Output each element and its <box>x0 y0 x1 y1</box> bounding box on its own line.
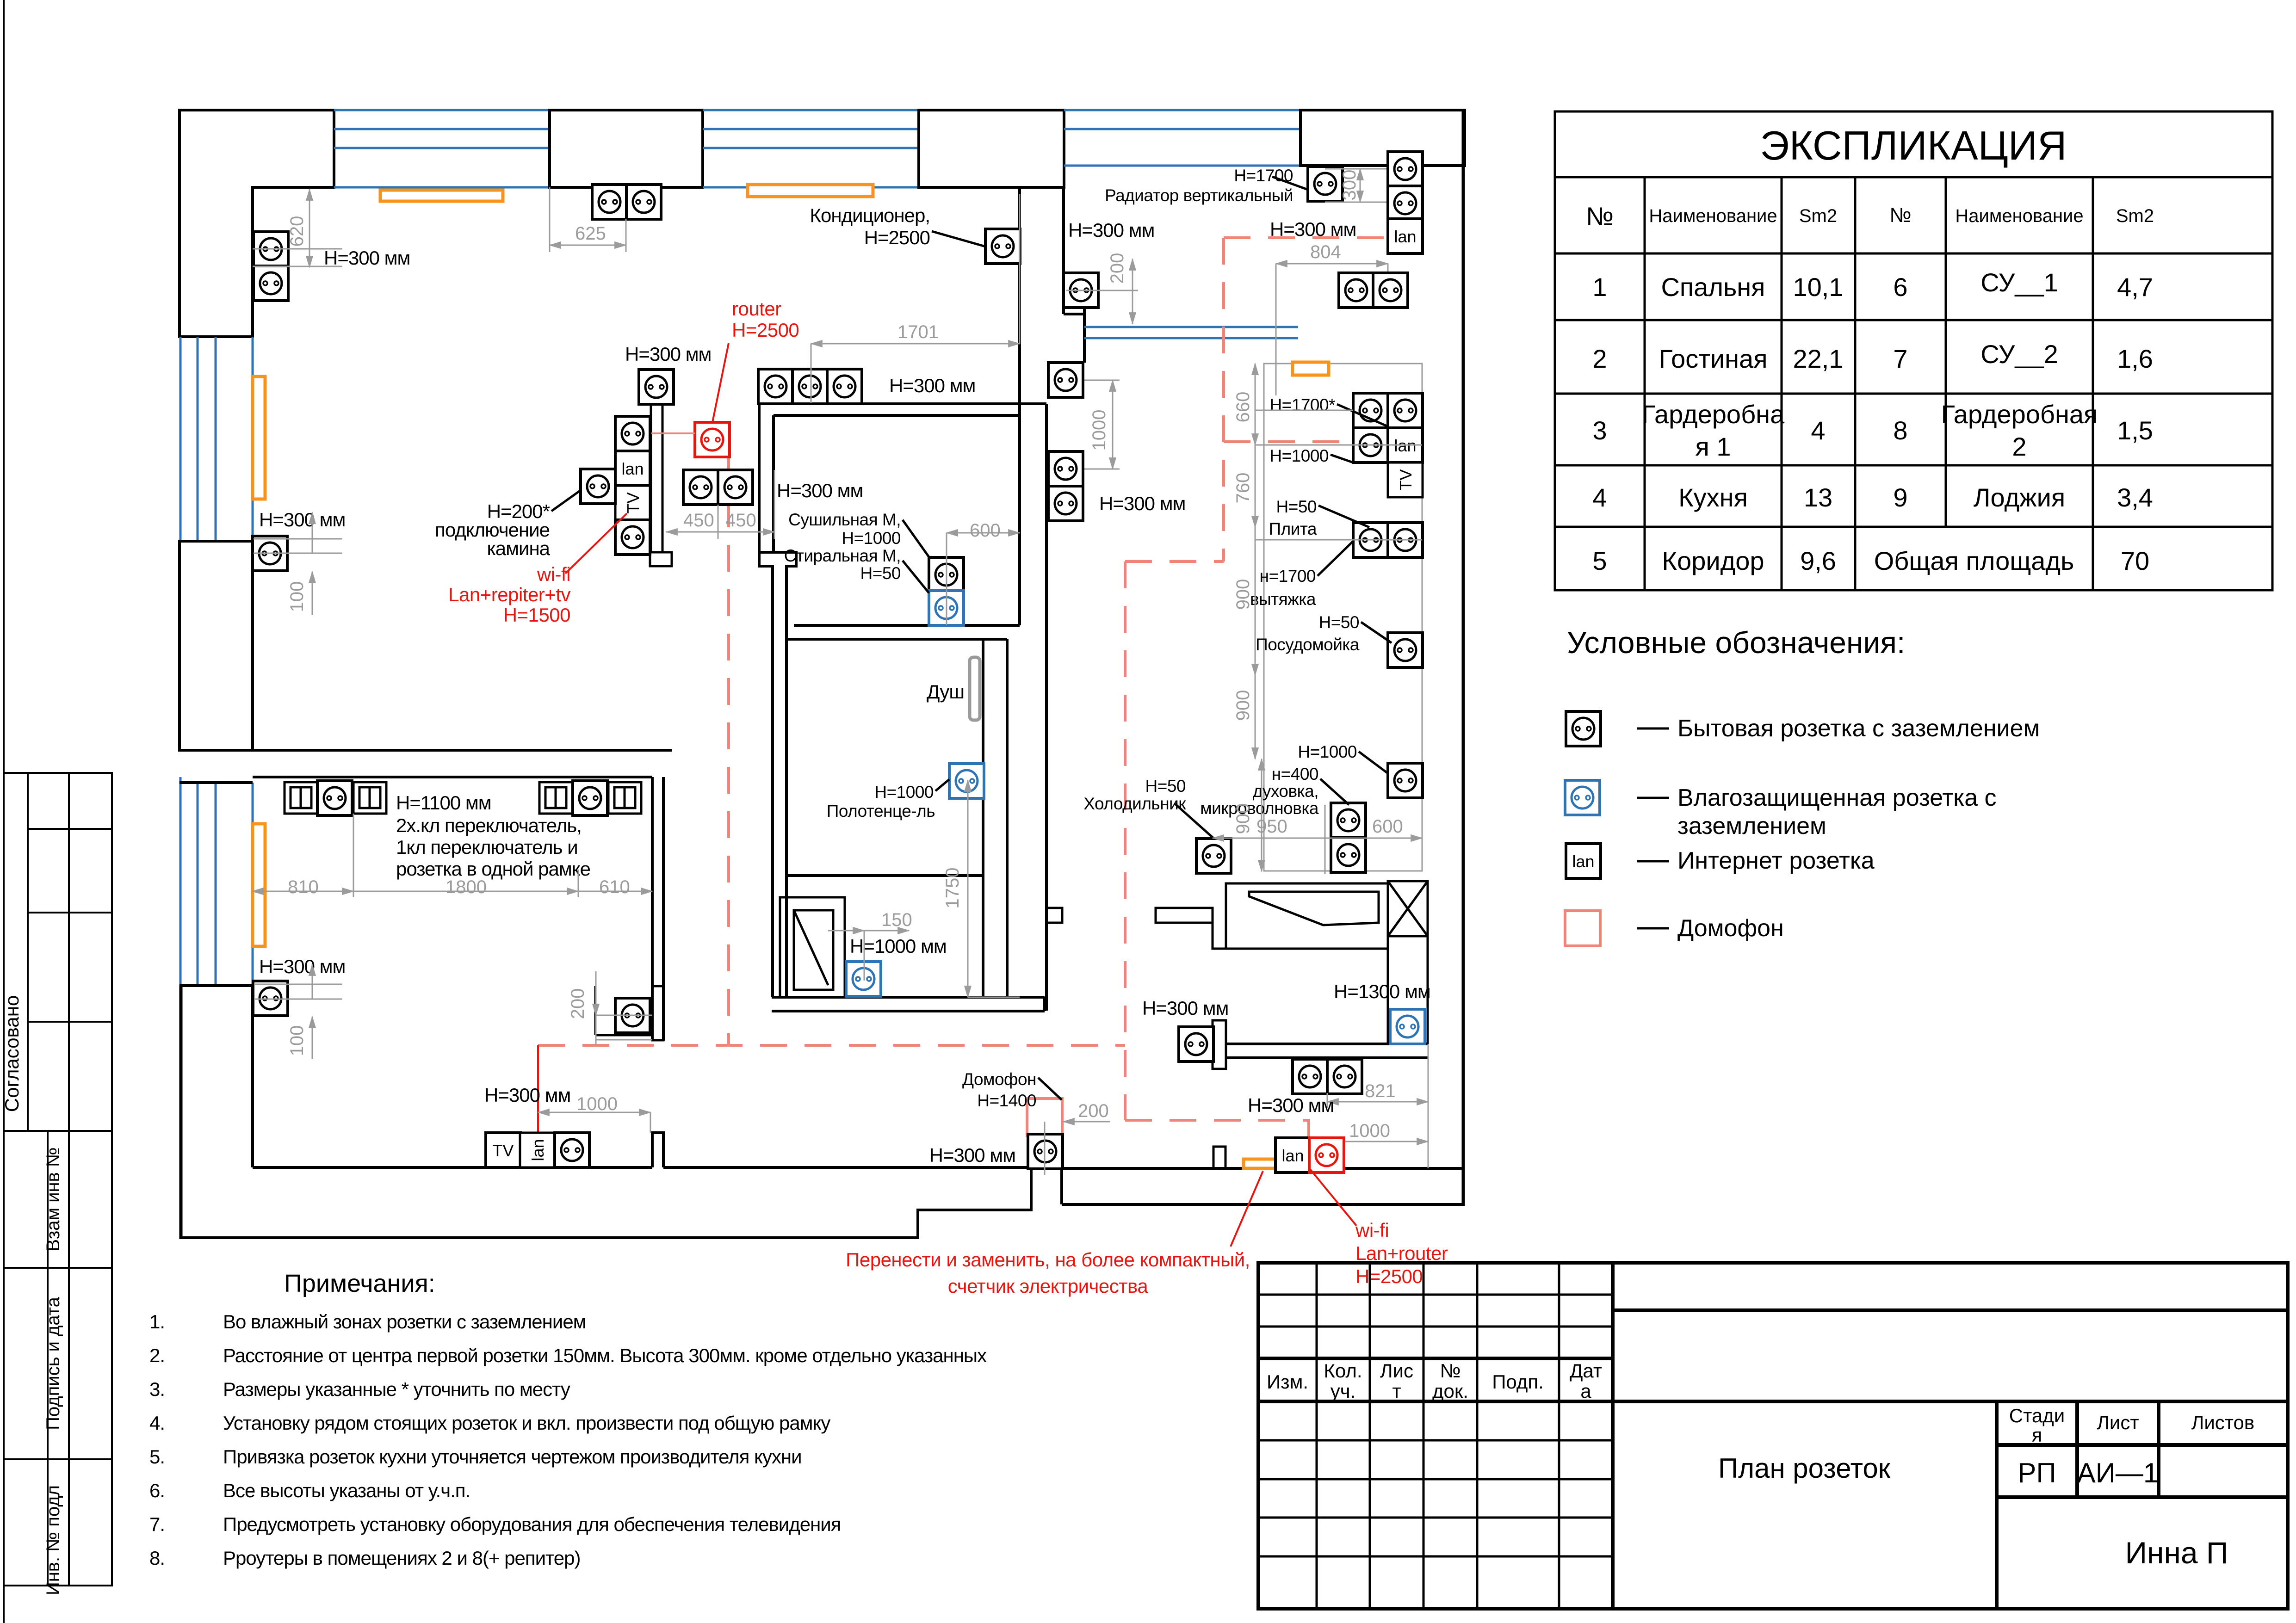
svg-text:H=300 мм: H=300 мм <box>259 509 345 531</box>
svg-text:5: 5 <box>1592 546 1607 575</box>
svg-text:Рроутеры в помещениях 2 и 8(+: Рроутеры в помещениях 2 и 8(+ репитер) <box>223 1547 581 1569</box>
svg-text:H=1000: H=1000 <box>842 529 901 548</box>
svg-text:Плита: Плита <box>1269 519 1317 538</box>
svg-text:660: 660 <box>1233 392 1253 423</box>
svg-text:2: 2 <box>1592 344 1607 373</box>
svg-text:Спальня: Спальня <box>1661 272 1765 302</box>
svg-text:610: 610 <box>599 877 630 897</box>
svg-text:8.: 8. <box>149 1547 165 1569</box>
svg-text:Лоджия: Лоджия <box>1974 483 2065 512</box>
svg-text:H=1000: H=1000 <box>1298 742 1357 761</box>
svg-text:1000: 1000 <box>1089 410 1109 451</box>
svg-text:H=300 мм: H=300 мм <box>1142 997 1228 1019</box>
svg-text:810: 810 <box>288 877 319 897</box>
svg-text:H=300 мм: H=300 мм <box>1270 218 1356 240</box>
svg-text:Гостиная: Гостиная <box>1659 344 1767 373</box>
svg-text:760: 760 <box>1233 473 1253 504</box>
svg-text:H=50: H=50 <box>1319 613 1359 632</box>
svg-text:H=300 мм: H=300 мм <box>777 480 863 501</box>
svg-text:600: 600 <box>970 520 1001 541</box>
svg-text:План розеток: План розеток <box>1718 1453 1891 1484</box>
svg-text:вытяжка: вытяжка <box>1250 590 1316 609</box>
svg-text:я 1: я 1 <box>1695 432 1731 461</box>
svg-text:4: 4 <box>1592 483 1607 512</box>
svg-text:4: 4 <box>1811 416 1825 445</box>
svg-text:lan: lan <box>528 1139 547 1161</box>
svg-text:розетка в одной рамке: розетка в одной рамке <box>396 858 590 880</box>
svg-text:900: 900 <box>1233 803 1253 834</box>
svg-text:Домофон: Домофон <box>962 1070 1036 1089</box>
svg-text:625: 625 <box>575 223 606 244</box>
svg-text:СУ__2: СУ__2 <box>1980 339 2058 369</box>
svg-text:6: 6 <box>1893 272 1907 302</box>
svg-text:Все высоты указаны от у.ч.п.: Все высоты указаны от у.ч.п. <box>223 1480 470 1501</box>
svg-text:200: 200 <box>1078 1101 1109 1121</box>
svg-text:H=300 мм: H=300 мм <box>929 1144 1015 1166</box>
svg-text:Общая площадь: Общая площадь <box>1874 546 2074 575</box>
svg-text:H=2500: H=2500 <box>732 319 799 341</box>
svg-text:H=50: H=50 <box>860 564 901 583</box>
svg-text:3,4: 3,4 <box>2117 483 2153 512</box>
svg-text:1750: 1750 <box>942 868 963 909</box>
svg-text:100: 100 <box>287 581 307 612</box>
svg-text:H=1000: H=1000 <box>874 783 934 802</box>
svg-text:1,5: 1,5 <box>2117 416 2153 445</box>
svg-text:8: 8 <box>1893 416 1907 445</box>
svg-text:Влагозащищенная розетка с: Влагозащищенная розетка с <box>1677 784 1997 811</box>
svg-text:9,6: 9,6 <box>1800 546 1836 575</box>
svg-text:H=1100 мм: H=1100 мм <box>396 792 491 814</box>
svg-text:H=300 мм: H=300 мм <box>259 956 345 977</box>
svg-text:100: 100 <box>287 1025 307 1056</box>
svg-text:№: № <box>1440 1360 1461 1382</box>
svg-text:Подпись и дата: Подпись и дата <box>43 1296 63 1430</box>
svg-text:5.: 5. <box>149 1446 165 1468</box>
svg-text:Кухня: Кухня <box>1678 483 1748 512</box>
svg-text:3.: 3. <box>149 1378 165 1400</box>
svg-text:Гардеробная: Гардеробная <box>1941 400 2098 429</box>
svg-text:Интернет розетка: Интернет розетка <box>1677 847 1875 874</box>
svg-text:Расстояние от центра первой ро: Расстояние от центра первой розетки 150м… <box>223 1345 987 1366</box>
svg-text:Размеры указанные * уточнить п: Размеры указанные * уточнить по месту <box>223 1378 570 1400</box>
svg-text:450: 450 <box>725 510 756 531</box>
svg-text:router: router <box>732 298 781 320</box>
svg-text:H=1500: H=1500 <box>503 604 570 626</box>
svg-text:Радиатор вертикальный: Радиатор вертикальный <box>1105 186 1293 205</box>
svg-text:н=1700: н=1700 <box>1260 567 1316 586</box>
svg-text:wi-fi: wi-fi <box>537 563 570 585</box>
svg-text:Коридор: Коридор <box>1662 546 1764 575</box>
svg-text:Примечания:: Примечания: <box>284 1270 435 1297</box>
svg-text:Подп.: Подп. <box>1492 1371 1544 1393</box>
svg-text:Sm2: Sm2 <box>2116 206 2154 226</box>
svg-text:н=400: н=400 <box>1272 765 1318 784</box>
svg-text:2х.кл переключатель,: 2х.кл переключатель, <box>396 815 582 836</box>
svg-text:2: 2 <box>2012 432 2026 461</box>
svg-text:804: 804 <box>1310 242 1341 262</box>
svg-text:Домофон: Домофон <box>1677 915 1784 942</box>
svg-text:Во влажный зонах розетки с заз: Во влажный зонах розетки с заземлением <box>223 1311 586 1333</box>
svg-text:Листов: Листов <box>2191 1412 2254 1433</box>
svg-text:22,1: 22,1 <box>1793 344 1844 373</box>
svg-text:9: 9 <box>1893 483 1907 512</box>
svg-text:H=2500: H=2500 <box>1355 1265 1423 1287</box>
svg-text:Лис: Лис <box>1380 1360 1413 1382</box>
svg-text:т: т <box>1392 1380 1401 1402</box>
svg-text:1кл переключатель и: 1кл переключатель и <box>396 836 578 858</box>
svg-text:Условные обозначения:: Условные обозначения: <box>1567 625 1905 660</box>
svg-text:Душ: Душ <box>927 681 964 703</box>
svg-text:4,7: 4,7 <box>2117 272 2153 302</box>
svg-text:H=1300 мм: H=1300 мм <box>1334 981 1430 1002</box>
svg-text:Лист: Лист <box>2097 1412 2139 1433</box>
svg-text:Дат: Дат <box>1570 1360 1602 1382</box>
svg-text:1000: 1000 <box>576 1094 618 1114</box>
svg-text:Инв. № подл: Инв. № подл <box>43 1485 63 1595</box>
svg-text:7: 7 <box>1893 344 1907 373</box>
svg-text:Согласовано: Согласовано <box>1 995 23 1112</box>
svg-text:Полотенце-ль: Полотенце-ль <box>827 802 935 821</box>
svg-text:H=1700*: H=1700* <box>1269 395 1335 414</box>
svg-text:Sm2: Sm2 <box>1799 206 1837 226</box>
svg-text:H=2500: H=2500 <box>864 227 930 248</box>
svg-text:wi-fi: wi-fi <box>1355 1219 1389 1241</box>
svg-text:150: 150 <box>881 910 912 930</box>
svg-text:13: 13 <box>1804 483 1832 512</box>
svg-text:6.: 6. <box>149 1480 165 1501</box>
svg-text:200: 200 <box>1107 253 1127 284</box>
svg-text:микроволновка: микроволновка <box>1200 799 1319 818</box>
svg-text:ЭКСПЛИКАЦИЯ: ЭКСПЛИКАЦИЯ <box>1760 123 2067 168</box>
svg-text:Предусмотреть установку оборуд: Предусмотреть установку оборудования для… <box>223 1513 841 1535</box>
svg-text:я: я <box>2032 1424 2042 1446</box>
svg-text:Посудомойка: Посудомойка <box>1256 635 1360 654</box>
svg-text:TV: TV <box>1396 469 1415 490</box>
svg-text:Сушильная М,: Сушильная М, <box>788 510 901 529</box>
svg-text:№: № <box>1889 204 1911 227</box>
svg-text:Бытовая розетка с заземлением: Бытовая розетка с заземлением <box>1677 715 2040 742</box>
svg-text:Привязка розеток кухни уточняе: Привязка розеток кухни уточняется чертеж… <box>223 1446 802 1468</box>
svg-text:Lan+router: Lan+router <box>1355 1242 1448 1264</box>
svg-text:заземлением: заземлением <box>1677 813 1826 839</box>
svg-text:H=50: H=50 <box>1276 497 1317 516</box>
svg-text:H=50: H=50 <box>1145 777 1186 796</box>
svg-text:70: 70 <box>2121 546 2149 575</box>
svg-text:счетчик электричества: счетчик электричества <box>948 1275 1149 1297</box>
svg-text:H=1000: H=1000 <box>1269 446 1329 465</box>
svg-text:Установку рядом стоящих розето: Установку рядом стоящих розеток и вкл. п… <box>223 1412 830 1434</box>
svg-text:3: 3 <box>1592 416 1607 445</box>
svg-text:600: 600 <box>1372 816 1403 837</box>
svg-text:620: 620 <box>287 216 307 247</box>
svg-text:200: 200 <box>568 988 588 1019</box>
svg-text:Гардеробна: Гардеробна <box>1642 400 1785 429</box>
svg-text:H=300 мм: H=300 мм <box>1248 1094 1334 1116</box>
svg-text:Наименование: Наименование <box>1955 206 2083 226</box>
svg-text:1800: 1800 <box>446 877 487 897</box>
svg-text:H=300 мм: H=300 мм <box>1068 219 1154 241</box>
svg-text:H=1400: H=1400 <box>977 1091 1036 1110</box>
svg-text:1701: 1701 <box>897 322 939 342</box>
svg-text:а: а <box>1580 1380 1591 1402</box>
svg-text:Холодильник: Холодильник <box>1083 794 1186 813</box>
svg-text:Стиральная М,: Стиральная М, <box>784 546 901 565</box>
svg-text:Изм.: Изм. <box>1267 1371 1308 1393</box>
svg-text:СУ__1: СУ__1 <box>1980 268 2058 297</box>
svg-text:АИ—1: АИ—1 <box>2077 1457 2159 1488</box>
svg-text:Стади: Стади <box>2009 1405 2065 1426</box>
svg-text:Кондиционер,: Кондиционер, <box>810 204 930 226</box>
svg-text:7.: 7. <box>149 1513 165 1535</box>
svg-text:1.: 1. <box>149 1311 165 1333</box>
svg-text:1000: 1000 <box>1349 1121 1390 1141</box>
svg-text:док.: док. <box>1432 1380 1468 1402</box>
svg-text:TV: TV <box>624 492 643 513</box>
svg-text:Кол.: Кол. <box>1324 1360 1362 1382</box>
svg-text:900: 900 <box>1233 579 1253 610</box>
svg-text:H=300 мм: H=300 мм <box>484 1084 570 1106</box>
svg-text:900: 900 <box>1233 690 1253 721</box>
svg-text:1,6: 1,6 <box>2117 344 2153 373</box>
svg-text:Наименование: Наименование <box>1649 206 1777 226</box>
svg-text:821: 821 <box>1365 1081 1396 1101</box>
svg-text:4.: 4. <box>149 1412 165 1434</box>
svg-text:450: 450 <box>683 510 714 531</box>
svg-text:300: 300 <box>1339 170 1360 201</box>
svg-text:№: № <box>1586 202 1614 231</box>
svg-text:Взам инв №: Взам инв № <box>43 1147 63 1252</box>
svg-text:2.: 2. <box>149 1345 165 1366</box>
svg-text:Lan+repiter+tv: Lan+repiter+tv <box>448 584 570 605</box>
svg-text:уч.: уч. <box>1331 1380 1356 1402</box>
svg-text:10,1: 10,1 <box>1793 272 1844 302</box>
svg-text:духовка,: духовка, <box>1253 782 1318 801</box>
svg-text:РП: РП <box>2018 1457 2056 1488</box>
svg-text:1: 1 <box>1592 272 1607 302</box>
svg-text:камина: камина <box>487 537 550 559</box>
svg-text:H=300 мм: H=300 мм <box>889 375 975 396</box>
svg-text:Перенести и заменить, на более: Перенести и заменить, на более компактны… <box>846 1249 1250 1271</box>
svg-text:H=300 мм: H=300 мм <box>324 247 410 269</box>
svg-text:Инна П: Инна П <box>2125 1536 2228 1570</box>
svg-text:H=300 мм: H=300 мм <box>625 343 711 365</box>
svg-text:H=300 мм: H=300 мм <box>1099 493 1185 514</box>
